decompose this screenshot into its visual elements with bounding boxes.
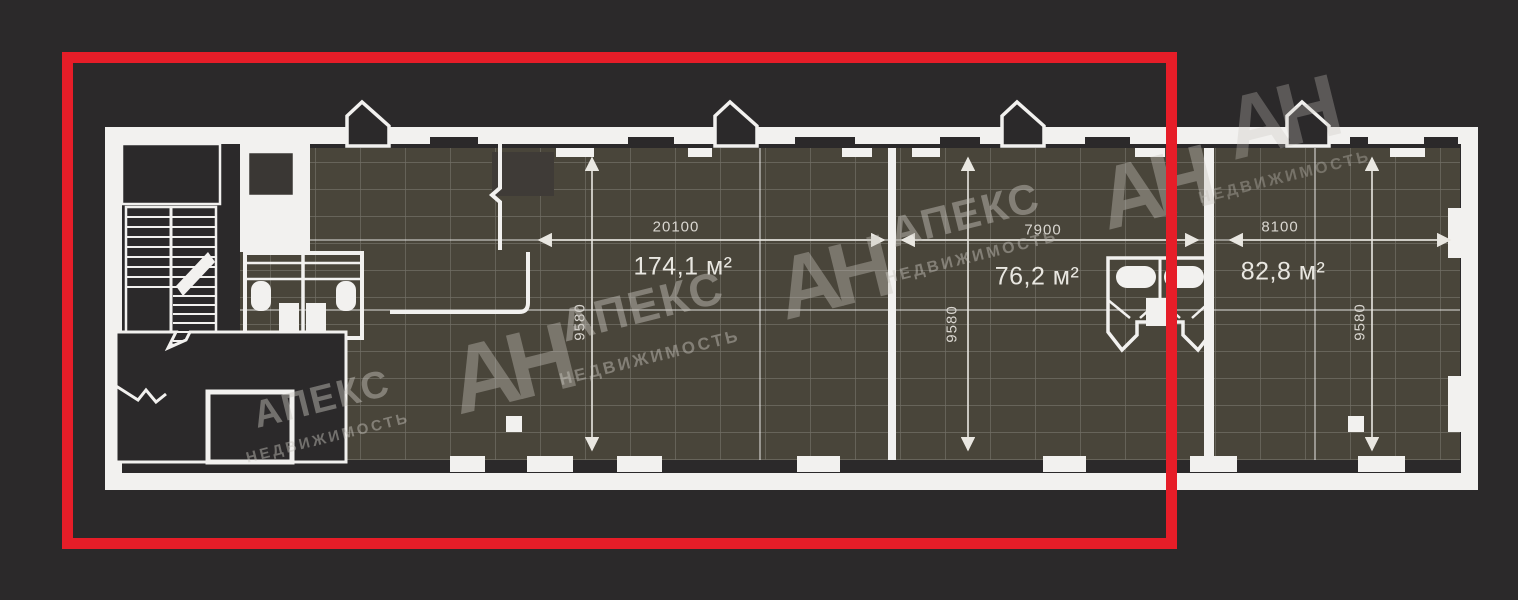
room-3-width-dimension: 8100	[1261, 219, 1298, 236]
screenshot-root: 174,1 м² 76,2 м² 82,8 м² 20100 7900 8100…	[0, 0, 1518, 600]
room-3-area-label: 82,8 м²	[1241, 258, 1326, 287]
room-3-depth-dimension: 9580	[1352, 303, 1369, 340]
highlight-rectangle	[62, 52, 1177, 549]
